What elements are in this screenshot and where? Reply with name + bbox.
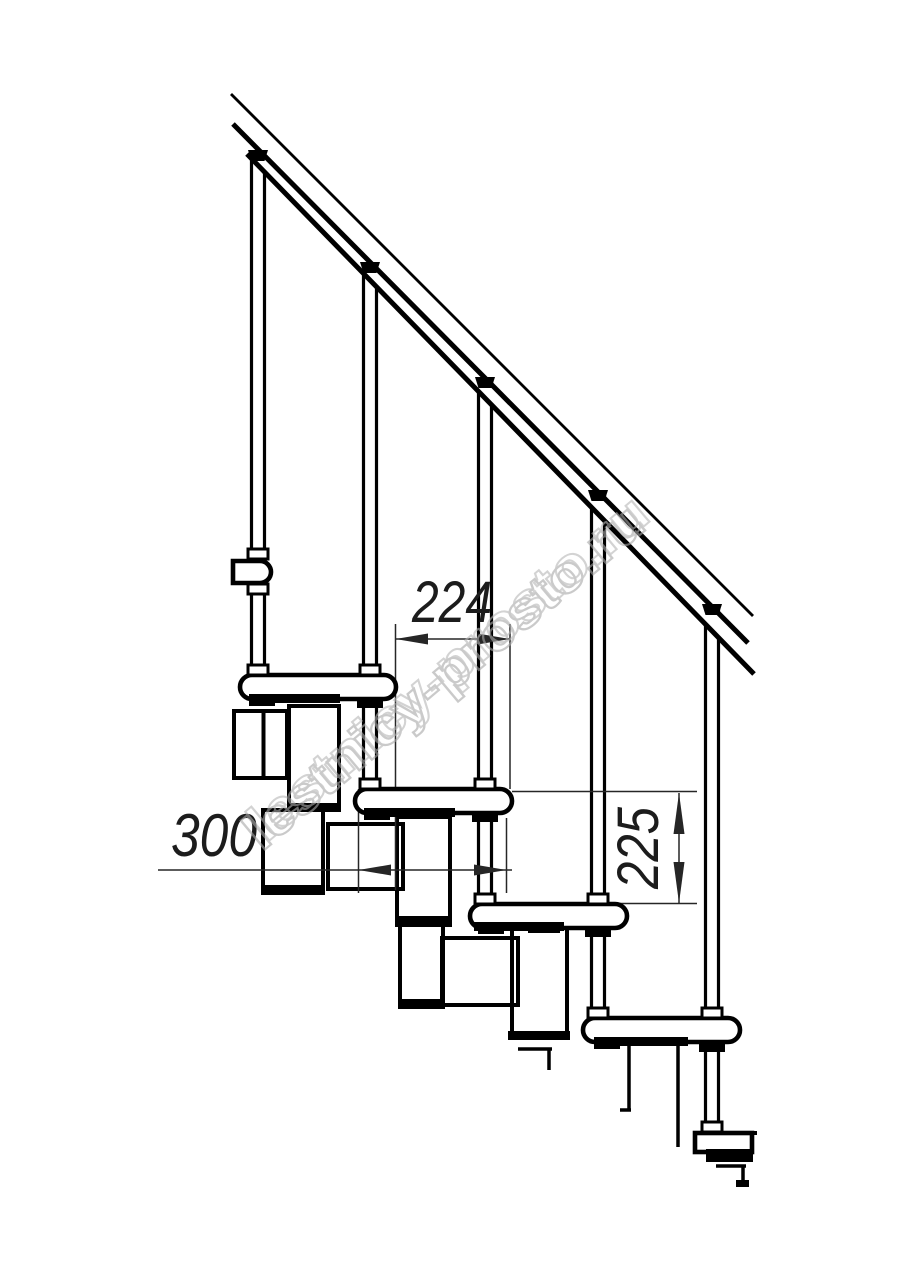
module-box (400, 925, 443, 1007)
bottom-step-hook (716, 1166, 746, 1184)
module-partial-lines (518, 1042, 678, 1147)
module-box (234, 711, 287, 778)
module-box (442, 938, 518, 1005)
rail-clamp (248, 150, 268, 161)
module-box (328, 824, 403, 889)
baluster-1 (252, 152, 265, 681)
rail-clamp (475, 377, 495, 388)
module-box (512, 928, 567, 1037)
baluster-5 (706, 608, 719, 1139)
staircase-side-elevation-drawing: 224 300 225 lestnicy-prosto.ru lestnicy-… (0, 0, 914, 1280)
staircase-technical-drawing-page: 224 300 225 lestnicy-prosto.ru lestnicy-… (0, 0, 914, 1280)
rail-clamp (702, 604, 722, 615)
rail-clamp (360, 262, 380, 273)
dimension-label-225: 225 (606, 806, 671, 889)
arrowhead-up (674, 793, 685, 834)
arrowhead-left (359, 865, 392, 876)
arrowhead-down (674, 862, 685, 903)
arrowhead-left (396, 634, 429, 645)
tread-top-stub (233, 561, 271, 583)
